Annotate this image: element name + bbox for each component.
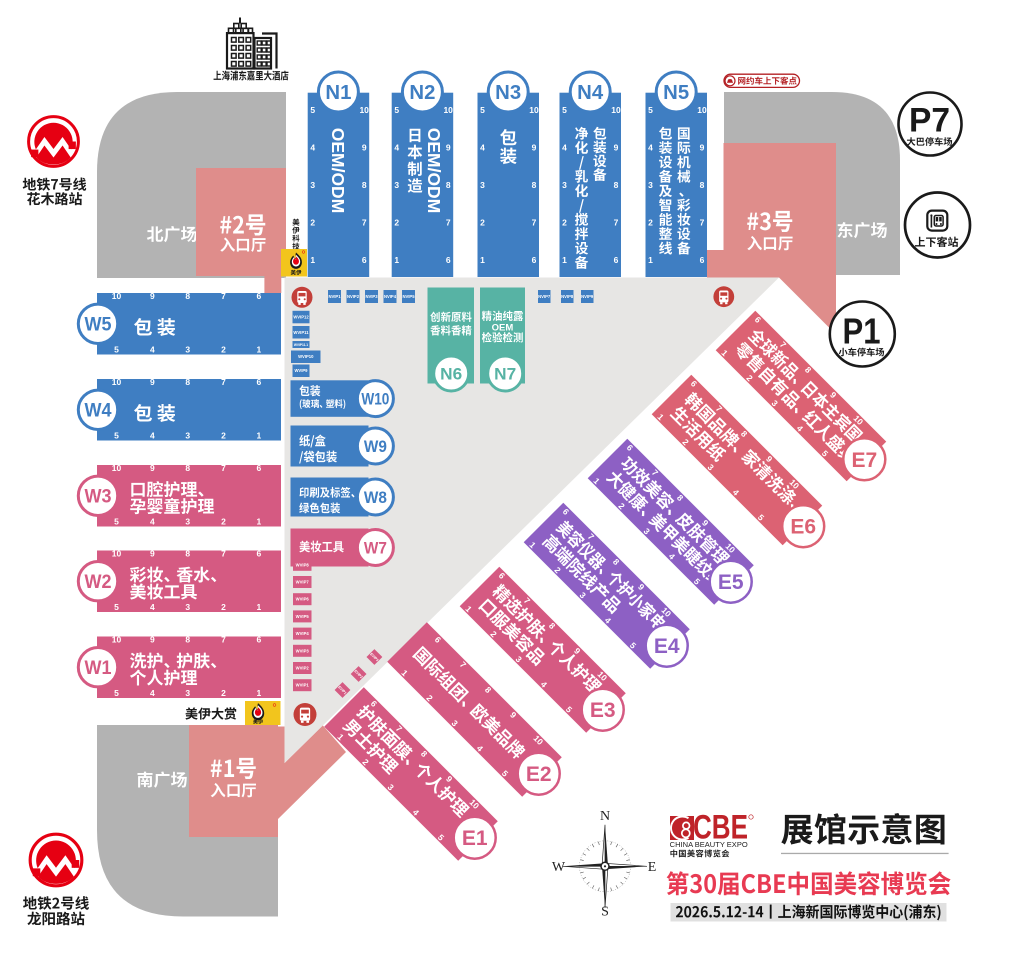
svg-text:1: 1 bbox=[257, 517, 262, 527]
svg-text:N7: N7 bbox=[494, 365, 516, 384]
svg-text:5: 5 bbox=[114, 345, 119, 355]
svg-text:4: 4 bbox=[648, 142, 653, 152]
svg-text:E: E bbox=[648, 860, 657, 875]
svg-text:N5: N5 bbox=[663, 82, 689, 104]
svg-text:8: 8 bbox=[185, 549, 190, 559]
svg-text:5: 5 bbox=[114, 602, 119, 612]
svg-text:2: 2 bbox=[310, 217, 315, 227]
svg-text:W3: W3 bbox=[85, 487, 112, 508]
svg-text:NVIP2: NVIP2 bbox=[347, 294, 360, 299]
svg-text:W1: W1 bbox=[85, 658, 112, 679]
svg-text:6: 6 bbox=[700, 255, 705, 265]
svg-text:7: 7 bbox=[532, 217, 537, 227]
svg-text:2: 2 bbox=[221, 688, 226, 698]
svg-text:WVIP2: WVIP2 bbox=[296, 666, 310, 671]
svg-text:10: 10 bbox=[529, 105, 539, 115]
svg-text:10: 10 bbox=[112, 549, 122, 559]
svg-text:8: 8 bbox=[185, 463, 190, 473]
svg-text:2: 2 bbox=[221, 431, 226, 441]
svg-text:1: 1 bbox=[257, 431, 262, 441]
svg-text:WVIP7: WVIP7 bbox=[296, 580, 310, 585]
svg-text:W7: W7 bbox=[364, 540, 387, 558]
svg-text:WVIP5: WVIP5 bbox=[296, 614, 310, 619]
svg-text:3: 3 bbox=[185, 517, 190, 527]
svg-text:9: 9 bbox=[532, 142, 537, 152]
svg-text:2: 2 bbox=[648, 217, 653, 227]
svg-text:3: 3 bbox=[648, 180, 653, 190]
svg-text:7: 7 bbox=[221, 291, 226, 301]
svg-text:5: 5 bbox=[394, 105, 399, 115]
svg-text:NVIP4: NVIP4 bbox=[384, 294, 397, 299]
svg-text:1: 1 bbox=[648, 255, 653, 265]
svg-text:7: 7 bbox=[221, 635, 226, 645]
svg-text:NVIP1: NVIP1 bbox=[328, 294, 341, 299]
svg-text:WVIP4: WVIP4 bbox=[296, 631, 310, 636]
svg-text:9: 9 bbox=[150, 377, 155, 387]
svg-text:7: 7 bbox=[614, 217, 619, 227]
svg-text:WVIP9: WVIP9 bbox=[294, 368, 308, 373]
svg-text:6: 6 bbox=[257, 463, 262, 473]
svg-text:E2: E2 bbox=[526, 763, 552, 786]
svg-text:9: 9 bbox=[150, 635, 155, 645]
svg-text:E3: E3 bbox=[590, 699, 616, 722]
svg-text:5: 5 bbox=[114, 431, 119, 441]
svg-text:5: 5 bbox=[310, 105, 315, 115]
svg-text:1: 1 bbox=[394, 255, 399, 265]
svg-text:S: S bbox=[601, 905, 609, 920]
svg-text:WVIP1: WVIP1 bbox=[296, 683, 310, 688]
svg-text:9: 9 bbox=[362, 142, 367, 152]
svg-text:E4: E4 bbox=[654, 635, 680, 658]
svg-text:4: 4 bbox=[150, 602, 155, 612]
svg-text:6: 6 bbox=[257, 291, 262, 301]
svg-text:7: 7 bbox=[221, 549, 226, 559]
svg-text:4: 4 bbox=[150, 345, 155, 355]
svg-text:8: 8 bbox=[185, 377, 190, 387]
svg-text:5: 5 bbox=[562, 105, 567, 115]
svg-text:8: 8 bbox=[362, 180, 367, 190]
svg-text:8: 8 bbox=[446, 180, 451, 190]
svg-text:W5: W5 bbox=[85, 315, 112, 336]
svg-text:10: 10 bbox=[697, 105, 707, 115]
svg-text:NVIP9: NVIP9 bbox=[581, 294, 594, 299]
svg-text:P7: P7 bbox=[909, 102, 950, 140]
svg-text:NVIP7: NVIP7 bbox=[538, 294, 551, 299]
svg-text:W: W bbox=[552, 860, 566, 875]
svg-text:1: 1 bbox=[562, 255, 567, 265]
svg-text:5: 5 bbox=[480, 105, 485, 115]
svg-text:8: 8 bbox=[185, 291, 190, 301]
svg-text:10: 10 bbox=[112, 635, 122, 645]
svg-text:1: 1 bbox=[257, 688, 262, 698]
svg-text:6: 6 bbox=[257, 377, 262, 387]
svg-text:2: 2 bbox=[221, 517, 226, 527]
svg-text:W4: W4 bbox=[85, 401, 112, 422]
svg-text:NVIP3: NVIP3 bbox=[365, 294, 378, 299]
svg-text:NVIP8: NVIP8 bbox=[561, 294, 574, 299]
svg-text:OEM/ODM: OEM/ODM bbox=[424, 128, 444, 214]
svg-text:6: 6 bbox=[446, 255, 451, 265]
svg-text:9: 9 bbox=[150, 291, 155, 301]
svg-text:2: 2 bbox=[221, 345, 226, 355]
svg-text:E7: E7 bbox=[851, 449, 877, 472]
svg-text:3: 3 bbox=[562, 180, 567, 190]
svg-text:10: 10 bbox=[112, 377, 122, 387]
svg-text:2: 2 bbox=[221, 602, 226, 612]
svg-text:8: 8 bbox=[700, 180, 705, 190]
svg-text:3: 3 bbox=[185, 688, 190, 698]
svg-text:10: 10 bbox=[112, 463, 122, 473]
svg-text:1: 1 bbox=[310, 255, 315, 265]
svg-text:WVIP3: WVIP3 bbox=[296, 648, 310, 653]
svg-text:N1: N1 bbox=[325, 82, 351, 104]
svg-text:N: N bbox=[600, 809, 610, 824]
svg-text:9: 9 bbox=[446, 142, 451, 152]
svg-text:WVIP8: WVIP8 bbox=[296, 562, 310, 567]
svg-text:N6: N6 bbox=[440, 365, 462, 384]
svg-text:E6: E6 bbox=[790, 516, 816, 539]
svg-text:8: 8 bbox=[185, 635, 190, 645]
svg-text:E1: E1 bbox=[462, 827, 488, 850]
svg-text:4: 4 bbox=[310, 142, 315, 152]
svg-text:8: 8 bbox=[532, 180, 537, 190]
svg-text:10: 10 bbox=[359, 105, 369, 115]
svg-text:WVIP10: WVIP10 bbox=[298, 354, 314, 359]
svg-text:6: 6 bbox=[257, 635, 262, 645]
svg-text:OEM/ODM: OEM/ODM bbox=[328, 128, 348, 214]
svg-text:3: 3 bbox=[394, 180, 399, 190]
svg-text:5: 5 bbox=[114, 688, 119, 698]
svg-text:P1: P1 bbox=[843, 311, 881, 352]
svg-text:W2: W2 bbox=[85, 572, 112, 593]
svg-text:WVIP6: WVIP6 bbox=[296, 597, 310, 602]
svg-text:2: 2 bbox=[562, 217, 567, 227]
svg-text:OEM: OEM bbox=[492, 323, 514, 334]
svg-text:1: 1 bbox=[257, 602, 262, 612]
svg-text:4: 4 bbox=[562, 142, 567, 152]
svg-text:9: 9 bbox=[150, 549, 155, 559]
svg-text:8: 8 bbox=[614, 180, 619, 190]
svg-text:3: 3 bbox=[185, 345, 190, 355]
svg-text:N2: N2 bbox=[409, 82, 435, 104]
svg-text:2: 2 bbox=[480, 217, 485, 227]
svg-text:W9: W9 bbox=[364, 438, 387, 456]
svg-text:7: 7 bbox=[221, 377, 226, 387]
svg-text:N4: N4 bbox=[577, 82, 604, 104]
svg-text:3: 3 bbox=[480, 180, 485, 190]
svg-text:2: 2 bbox=[394, 217, 399, 227]
svg-text:5: 5 bbox=[114, 517, 119, 527]
svg-text:WVIP12: WVIP12 bbox=[293, 315, 309, 320]
svg-text:6: 6 bbox=[257, 549, 262, 559]
svg-text:7: 7 bbox=[446, 217, 451, 227]
svg-text:7: 7 bbox=[221, 463, 226, 473]
svg-text:1: 1 bbox=[480, 255, 485, 265]
svg-text:4: 4 bbox=[150, 517, 155, 527]
svg-text:WVIP11.1: WVIP11.1 bbox=[294, 343, 308, 347]
svg-text:9: 9 bbox=[614, 142, 619, 152]
svg-text:10: 10 bbox=[611, 105, 621, 115]
svg-text:W10: W10 bbox=[361, 391, 389, 409]
svg-text:3: 3 bbox=[310, 180, 315, 190]
svg-text:6: 6 bbox=[362, 255, 367, 265]
svg-text:4: 4 bbox=[150, 688, 155, 698]
svg-text:W8: W8 bbox=[364, 489, 387, 507]
svg-text:4: 4 bbox=[480, 142, 485, 152]
svg-text:9: 9 bbox=[150, 463, 155, 473]
svg-text:CHINA BEAUTY EXPO: CHINA BEAUTY EXPO bbox=[670, 840, 748, 849]
svg-text:7: 7 bbox=[700, 217, 705, 227]
svg-text:E5: E5 bbox=[718, 571, 744, 594]
svg-text:7: 7 bbox=[362, 217, 367, 227]
svg-text:6: 6 bbox=[614, 255, 619, 265]
svg-text:N3: N3 bbox=[495, 82, 521, 104]
svg-text:3: 3 bbox=[185, 602, 190, 612]
svg-text:5: 5 bbox=[648, 105, 653, 115]
svg-text:1: 1 bbox=[257, 345, 262, 355]
svg-text:6: 6 bbox=[532, 255, 537, 265]
svg-text:4: 4 bbox=[150, 431, 155, 441]
svg-text:4: 4 bbox=[394, 142, 399, 152]
svg-text:3: 3 bbox=[185, 431, 190, 441]
svg-text:10: 10 bbox=[112, 291, 122, 301]
svg-text:WVIP11: WVIP11 bbox=[293, 330, 309, 335]
svg-text:NVIP5: NVIP5 bbox=[402, 294, 415, 299]
svg-text:9: 9 bbox=[700, 142, 705, 152]
svg-text:10: 10 bbox=[443, 105, 453, 115]
